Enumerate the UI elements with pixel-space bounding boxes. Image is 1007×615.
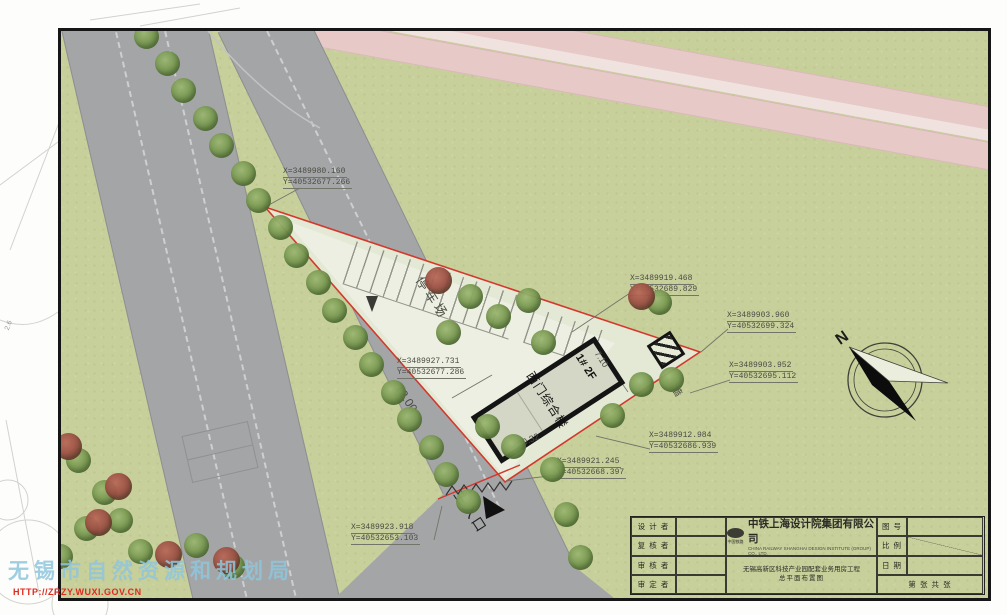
coord-y: Y=40532677.266: [283, 178, 352, 189]
tree-icon: [231, 161, 256, 186]
project-cell: 无锡高新区科技产业园配套业务用房工程 总平面布置图: [726, 556, 877, 595]
red-tree-icon: [58, 433, 82, 460]
tree-icon: [209, 133, 234, 158]
tree-icon: [554, 502, 579, 527]
tree-icon: [516, 288, 541, 313]
coord-y: Y=40532699.324: [727, 322, 796, 333]
project-title: 无锡高新区科技产业园配套业务用房工程: [743, 566, 860, 575]
title-block: 设 计 者 复 核 者 审 核 者 审 定 者 中国铁路 中铁上海设计院集团有限…: [630, 516, 985, 595]
tree-icon: [540, 457, 565, 482]
scale-value: [907, 536, 983, 555]
sheet-title: 总平面布置图: [779, 575, 824, 584]
titleblock-reviewer-label: 审 核 者: [631, 556, 676, 575]
tree-icon: [475, 414, 500, 439]
watermark-url: HTTP://ZRZY.WUXI.GOV.CN: [13, 587, 142, 597]
drawing-no-value: [907, 517, 983, 536]
tree-icon: [184, 533, 209, 558]
tree-icon: [486, 304, 511, 329]
tree-icon: [306, 270, 331, 295]
coordinate-callout: X=3489921.245 Y=40532668.397: [557, 457, 626, 479]
watermark-agency: 无锡市自然资源和规划局: [8, 555, 294, 585]
red-tree-icon: [628, 283, 655, 310]
company-name-en: CHINA RAILWAY SHANGHAI DESIGN INSTITUTE …: [748, 546, 876, 555]
coord-y: Y=40532653.103: [351, 534, 420, 545]
titleblock-checker-label: 复 核 者: [631, 536, 676, 555]
tree-icon: [193, 106, 218, 131]
titleblock-approver-value: [676, 575, 726, 594]
logo-text: 中国铁路: [728, 539, 744, 545]
tree-icon: [659, 367, 684, 392]
coordinate-callout: X=3489912.984 Y=40532686.939: [649, 431, 718, 453]
coord-y: Y=40532677.286: [397, 368, 466, 379]
tree-icon: [629, 372, 654, 397]
tree-icon: [568, 545, 593, 570]
coord-y: Y=40532695.112: [729, 372, 798, 383]
titleblock-designer-label: 设 计 者: [631, 517, 676, 536]
tree-icon: [501, 434, 526, 459]
tree-icon: [458, 284, 483, 309]
plan-canvas: N 1# 2F 西门综合楼 停车场 主入口 围墙 12.00 7.10 20.3…: [58, 28, 991, 601]
titleblock-checker-value: [676, 536, 726, 555]
tree-icon: [134, 28, 159, 49]
coord-x: X=3489921.245: [557, 457, 621, 468]
coord-y: Y=40532686.939: [649, 442, 718, 453]
drawing-frame: N 1# 2F 西门综合楼 停车场 主入口 围墙 12.00 7.10 20.3…: [58, 28, 991, 601]
company-name: 中铁上海设计院集团有限公司: [748, 517, 876, 546]
coordinate-callout: X=3489903.960 Y=40532699.324: [727, 311, 796, 333]
coordinate-callout: X=3489927.731 Y=40532677.286: [397, 357, 466, 379]
date-value: [907, 556, 983, 575]
coord-x: X=3489923.918: [351, 523, 415, 534]
coord-x: X=3489912.984: [649, 431, 713, 442]
coord-x: X=3489980.160: [283, 167, 347, 178]
coordinate-callout: X=3489903.952 Y=40532695.112: [729, 361, 798, 383]
tree-icon: [436, 320, 461, 345]
coordinate-callout: X=3489923.918 Y=40532653.103: [351, 523, 420, 545]
titleblock-approver-label: 审 定 者: [631, 575, 676, 594]
date-label: 日 期: [877, 556, 907, 575]
tree-icon: [322, 298, 347, 323]
titleblock-designer-value: [676, 517, 726, 536]
tree-icon: [381, 380, 406, 405]
sheet-count-cell: 第 张 共 张: [877, 575, 983, 594]
red-tree-icon: [425, 267, 452, 294]
red-tree-icon: [105, 473, 132, 500]
titleblock-reviewer-value: [676, 556, 726, 575]
company-cell: 中国铁路 中铁上海设计院集团有限公司 CHINA RAILWAY SHANGHA…: [726, 517, 877, 556]
tree-icon: [284, 243, 309, 268]
coord-x: X=3489903.952: [729, 361, 793, 372]
coord-x: X=3489927.731: [397, 357, 461, 368]
coordinate-callout: X=3489980.160 Y=40532677.266: [283, 167, 352, 189]
tree-icon: [531, 330, 556, 355]
tree-icon: [600, 403, 625, 428]
company-logo-icon: 中国铁路: [727, 528, 744, 545]
scale-label: 比 例: [877, 536, 907, 555]
site-plan-sheet: 2.6: [0, 0, 1007, 615]
red-tree-icon: [85, 509, 112, 536]
tree-icon: [397, 407, 422, 432]
tree-icon: [419, 435, 444, 460]
coord-x: X=3489903.960: [727, 311, 791, 322]
drawing-no-label: 图 号: [877, 517, 907, 536]
coord-y: Y=40532668.397: [557, 468, 626, 479]
